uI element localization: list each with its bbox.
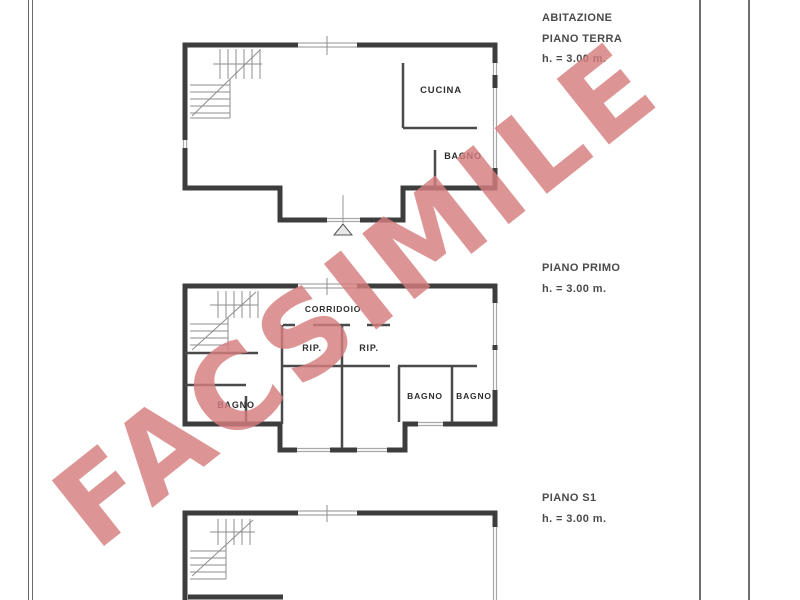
terra-outer-walls (185, 45, 495, 220)
terra-staircase-icon (190, 49, 262, 118)
s1-windows (298, 505, 497, 600)
primo-staircase-icon (190, 291, 258, 351)
drawing-sheet: ABITAZIONE PIANO TERRA h. = 3.00 m. PIAN… (0, 0, 800, 600)
primo-room-label-bagno-right: BAGNO (456, 391, 492, 401)
terra-height-label: h. = 3.00 m. (542, 49, 622, 70)
primo-height-label: h. = 3.00 m. (542, 279, 620, 300)
s1-height-label: h. = 3.00 m. (542, 509, 606, 530)
terra-title-line1: ABITAZIONE (542, 8, 622, 29)
primo-title-line1: PIANO PRIMO (542, 258, 620, 279)
primo-room-label-bagno-left: BAGNO (217, 400, 255, 410)
floor-plan-s1 (180, 505, 505, 600)
terra-title-line2: PIANO TERRA (542, 29, 622, 50)
terra-interior-walls (403, 63, 477, 188)
terra-room-label-bagno: BAGNO (444, 151, 482, 161)
floor-plan-terra: CUCINA BAGNO (180, 35, 505, 245)
primo-room-label-bagno-center: BAGNO (407, 391, 443, 401)
primo-interior-walls (185, 325, 477, 448)
page-border-right-outer (748, 0, 750, 600)
primo-room-label-rip-left: RIP. (302, 343, 322, 353)
primo-room-label-corridoio: CORRIDOIO (305, 304, 361, 314)
floor-title-s1: PIANO S1 h. = 3.00 m. (542, 488, 606, 529)
floor-title-terra: ABITAZIONE PIANO TERRA h. = 3.00 m. (542, 8, 622, 70)
floor-title-primo: PIANO PRIMO h. = 3.00 m. (542, 258, 620, 299)
floor-plan-primo: CORRIDOIO RIP. RIP. BAGNO BAGNO BAGNO (180, 278, 505, 463)
primo-room-label-rip-right: RIP. (359, 343, 379, 353)
s1-title-line1: PIANO S1 (542, 488, 606, 509)
page-border-right-inner (699, 0, 701, 600)
s1-outer-walls (185, 513, 495, 600)
terra-room-label-cucina: CUCINA (420, 85, 462, 96)
terra-entrance-marker (334, 195, 352, 235)
s1-staircase-icon (190, 519, 255, 579)
page-border-left (28, 0, 33, 600)
